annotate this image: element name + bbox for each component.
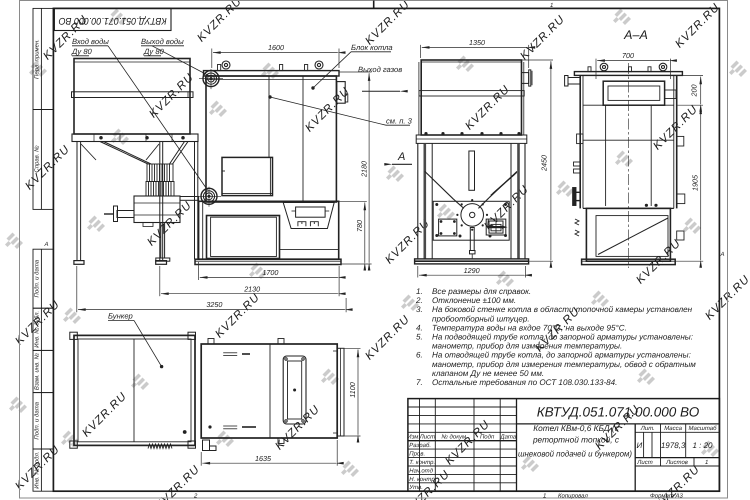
svg-text:КВТУД.051.071.00.000 ВО: КВТУД.051.071.00.000 ВО xyxy=(58,15,166,26)
svg-text:см. п. 3: см. п. 3 xyxy=(386,117,413,126)
svg-text:Температура воды на вхдое 70°С: Температура воды на вхдое 70°С, на выход… xyxy=(432,323,627,332)
svg-text:6.: 6. xyxy=(416,351,423,360)
svg-text:1905: 1905 xyxy=(691,174,700,191)
svg-text:На отводящей трубе котла, до з: На отводящей трубе котла, до запорной ар… xyxy=(432,351,691,360)
svg-text:КВТУД.051.071.00.000 ВО: КВТУД.051.071.00.000 ВО xyxy=(537,405,700,420)
svg-text:Остальные требования по ОСТ 10: Остальные требования по ОСТ 108.030.133-… xyxy=(432,378,617,387)
svg-text:2180: 2180 xyxy=(359,161,368,178)
svg-text:Котел КВм-0,6 КБД (с: Котел КВм-0,6 КБД (с xyxy=(533,423,619,433)
svg-text:На боковой стенке котла в обла: На боковой стенке котла в области топочн… xyxy=(432,305,693,314)
svg-text:А: А xyxy=(397,151,405,163)
svg-text:Лист: Лист xyxy=(419,434,435,441)
svg-text:Утв.: Утв. xyxy=(408,484,423,491)
svg-text:1100: 1100 xyxy=(348,382,357,397)
svg-text:А: А xyxy=(44,241,49,248)
svg-text:Подп. и дата: Подп. и дата xyxy=(34,259,41,297)
svg-text:Копировал: Копировал xyxy=(558,493,588,500)
svg-text:И: И xyxy=(637,441,643,450)
svg-text:780: 780 xyxy=(355,220,364,232)
svg-text:2450: 2450 xyxy=(539,155,548,172)
svg-text:2.: 2. xyxy=(415,296,423,305)
svg-text:Подп: Подп xyxy=(480,434,495,441)
svg-text:1: 1 xyxy=(550,2,553,9)
svg-text:Бункер: Бункер xyxy=(108,312,133,321)
svg-text:Все размеры для справок.: Все размеры для справок. xyxy=(432,287,531,296)
svg-text:Пров.: Пров. xyxy=(409,451,425,458)
svg-text:1350: 1350 xyxy=(469,38,485,47)
svg-text:Ду 80: Ду 80 xyxy=(143,47,165,56)
svg-text:Инв. № дубл.: Инв. № дубл. xyxy=(34,311,41,348)
svg-text:шнековой подачей и бункером): шнековой подачей и бункером) xyxy=(518,449,632,459)
svg-text:пробоотборный штуцер.: пробоотборный штуцер. xyxy=(432,314,530,323)
svg-text:Блок котла: Блок котла xyxy=(351,43,393,52)
svg-text:1700: 1700 xyxy=(262,268,278,277)
svg-text:Перв. примен.: Перв. примен. xyxy=(34,39,41,79)
svg-text:1600: 1600 xyxy=(268,43,284,52)
svg-text:Масштаб: Масштаб xyxy=(688,425,717,432)
svg-text:Взам. инв. №: Взам. инв. № xyxy=(34,352,41,390)
svg-text:Инв. № подл.: Инв. № подл. xyxy=(34,451,41,488)
svg-text:1.: 1. xyxy=(416,287,423,296)
svg-text:2: 2 xyxy=(193,493,198,500)
svg-text:3.: 3. xyxy=(416,305,423,314)
svg-text:Листов: Листов xyxy=(665,459,688,466)
svg-text:700: 700 xyxy=(622,51,634,60)
svg-text:манометр, прибор для измерения: манометр, прибор для измерения температу… xyxy=(432,342,622,351)
svg-text:1: 1 xyxy=(705,459,708,466)
svg-text:Лит.: Лит. xyxy=(640,425,655,432)
svg-text:200: 200 xyxy=(689,85,698,98)
svg-text:Дата: Дата xyxy=(499,434,516,441)
svg-text:1: 1 xyxy=(543,493,546,500)
svg-text:Масса: Масса xyxy=(664,425,682,432)
svg-text:ретортной топкой, с: ретортной топкой, с xyxy=(532,435,620,445)
svg-text:3250: 3250 xyxy=(206,300,222,309)
svg-text:А: А xyxy=(720,251,725,258)
svg-text:Лист: Лист xyxy=(636,459,652,466)
svg-text:5.: 5. xyxy=(416,333,423,342)
svg-text:На подводящей трубе котла, до: На подводящей трубе котла, до запорной а… xyxy=(432,333,693,342)
svg-text:1290: 1290 xyxy=(464,266,480,275)
svg-text:№ докум.: № докум. xyxy=(441,434,467,441)
svg-text:Нач.отд: Нач.отд xyxy=(409,467,433,474)
svg-text:Подп. и дата: Подп. и дата xyxy=(34,401,41,439)
svg-text:Формат А3: Формат А3 xyxy=(650,493,683,500)
svg-text:Т. контр.: Т. контр. xyxy=(409,459,435,466)
svg-text:Изм.: Изм. xyxy=(407,434,420,441)
svg-text:Вход воды: Вход воды xyxy=(72,37,109,46)
svg-text:2130: 2130 xyxy=(243,284,260,293)
svg-text:А–А: А–А xyxy=(623,28,648,42)
svg-text:1635: 1635 xyxy=(255,454,272,463)
svg-text:7.: 7. xyxy=(416,378,423,387)
svg-text:4.: 4. xyxy=(416,323,423,332)
svg-text:Выход воды: Выход воды xyxy=(141,37,184,46)
svg-text:1978,3: 1978,3 xyxy=(661,441,686,450)
svg-text:Разраб.: Разраб. xyxy=(409,442,431,449)
svg-text:Выход газов: Выход газов xyxy=(358,65,402,74)
svg-text:клапаном Ду не менее 50 мм.: клапаном Ду не менее 50 мм. xyxy=(432,369,544,378)
svg-text:Справ. №: Справ. № xyxy=(34,145,41,173)
svg-text:манометр, прибор для измерения: манометр, прибор для измерения температу… xyxy=(432,360,696,369)
svg-text:1 : 20: 1 : 20 xyxy=(692,441,713,450)
svg-text:Ду 80: Ду 80 xyxy=(71,47,93,56)
svg-text:Отклонение ±100 мм.: Отклонение ±100 мм. xyxy=(432,296,516,305)
svg-text:Н. контр.: Н. контр. xyxy=(409,476,436,483)
